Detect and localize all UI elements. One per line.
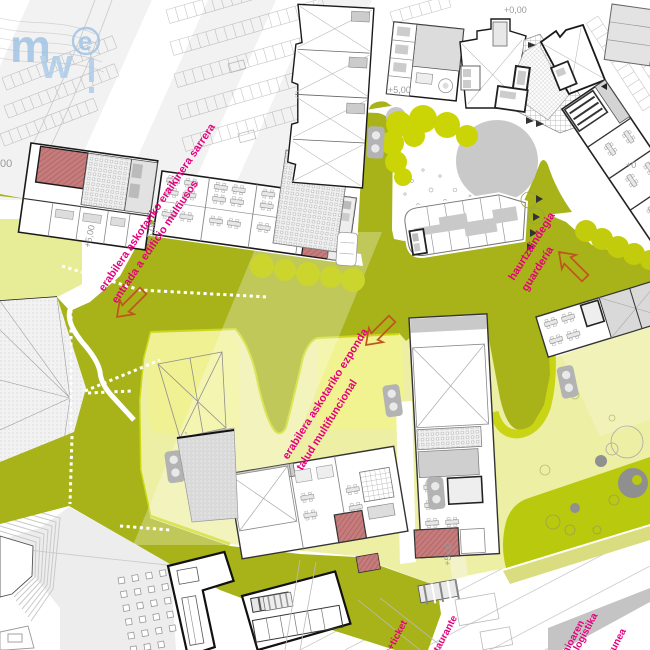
svg-text:+0,00: +0,00 [504, 5, 527, 15]
svg-text:e: e [78, 26, 92, 56]
svg-text:w: w [39, 40, 73, 87]
svg-text:+5,00: +5,00 [442, 543, 454, 567]
svg-text:+5,00: +5,00 [388, 85, 411, 95]
svg-text:+0: +0 [626, 160, 636, 170]
svg-text:00: 00 [0, 158, 12, 170]
